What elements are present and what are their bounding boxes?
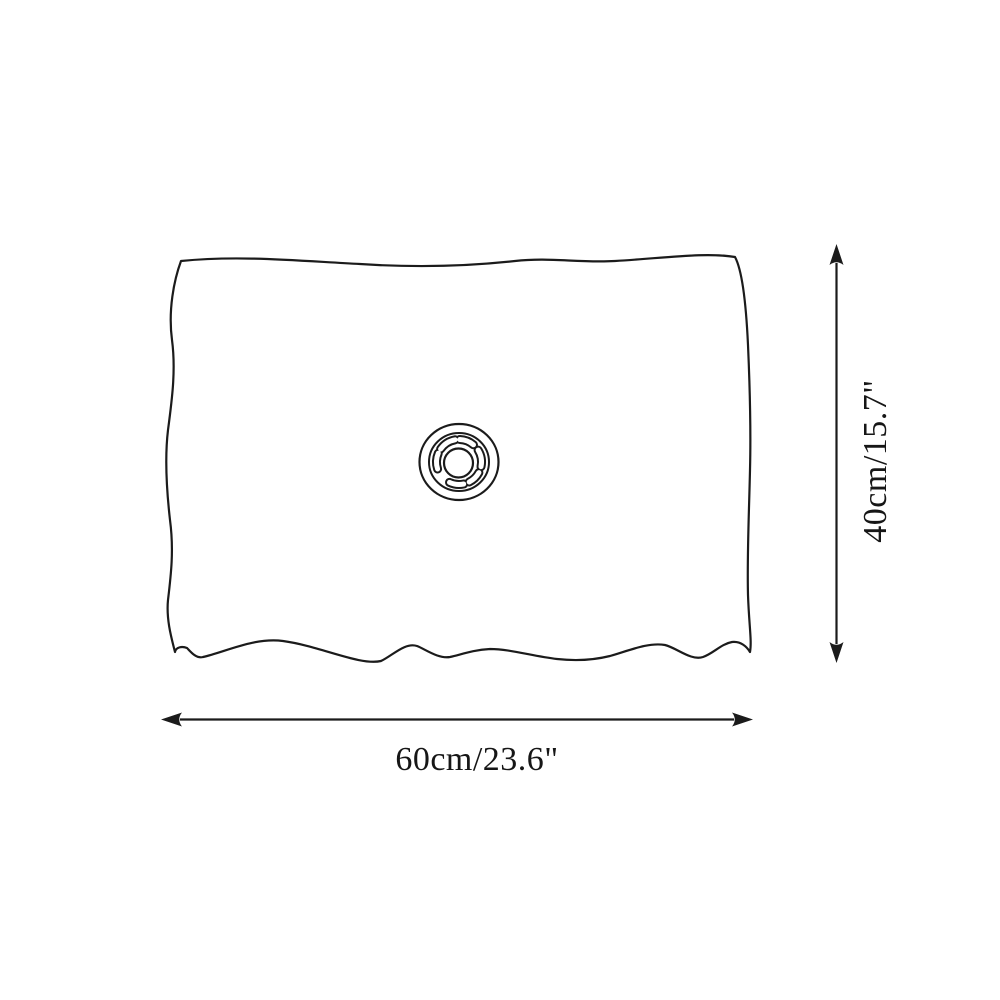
arrow-right-icon: [732, 713, 753, 727]
product-outline: [166, 255, 750, 662]
height-dimension-label: 40cm/15.7": [857, 379, 894, 542]
dimension-diagram: 40cm/15.7" 60cm/23.6": [0, 0, 1000, 1000]
diagram-canvas: 40cm/15.7" 60cm/23.6": [0, 0, 1000, 1000]
width-dimension-label: 60cm/23.6": [395, 741, 558, 778]
height-dimension: 40cm/15.7": [830, 244, 895, 663]
arrow-up-icon: [830, 244, 844, 265]
arrow-down-icon: [830, 642, 844, 663]
arrow-left-icon: [161, 713, 182, 727]
width-dimension: 60cm/23.6": [161, 713, 753, 779]
